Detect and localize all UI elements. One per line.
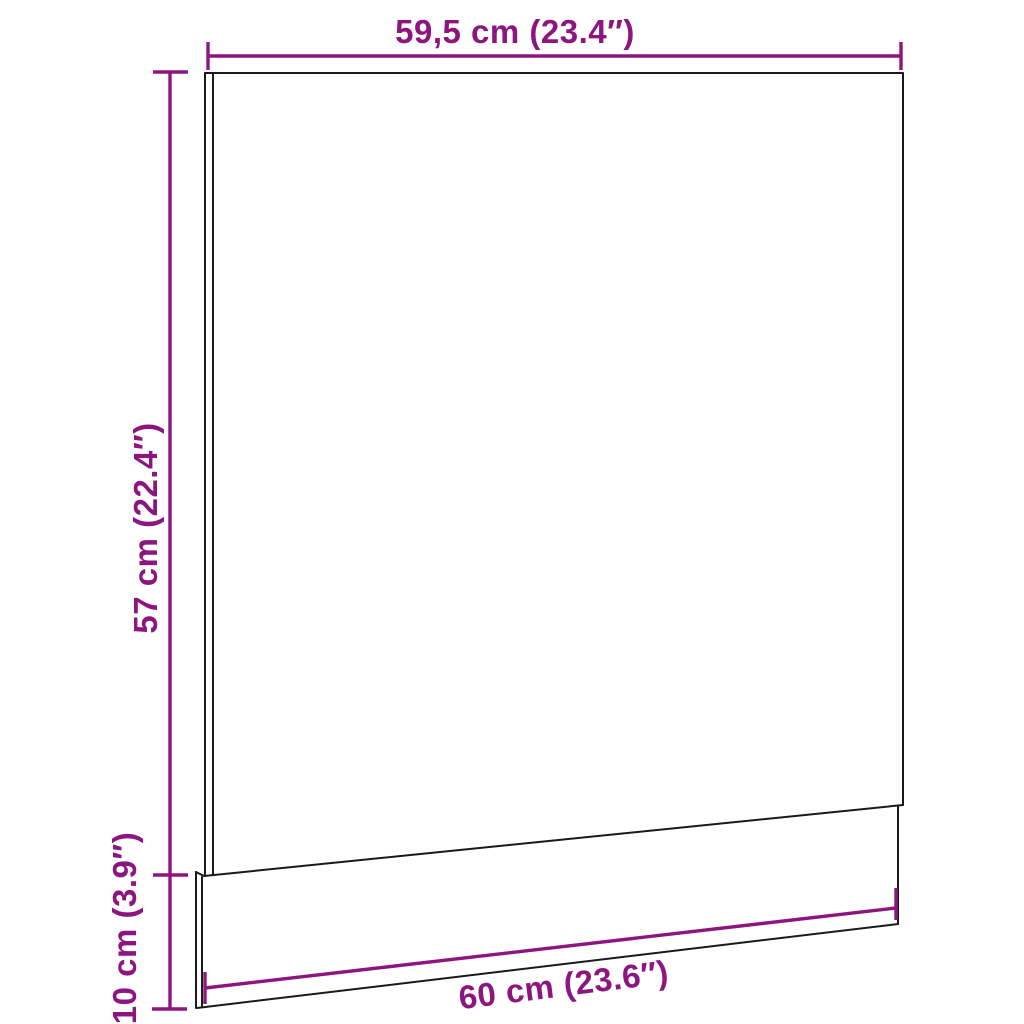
panel-bottom-plinth-top-edge (204, 805, 903, 876)
diagram-canvas: 59,5 cm (23.4″) 57 cm (22.4″) 10 cm (3.9… (0, 0, 1024, 1024)
plinth-top-left-sliver-edge (196, 872, 204, 876)
dim-label-top-width: 59,5 cm (23.4″) (395, 13, 635, 50)
dim-label-plinth-height: 10 cm (3.9″) (106, 832, 143, 1024)
dimension-diagram: 59,5 cm (23.4″) 57 cm (22.4″) 10 cm (3.9… (0, 0, 1024, 1024)
dim-label-panel-height: 57 cm (22.4″) (127, 422, 164, 633)
dim-label-bottom-width: 60 cm (23.6″) (456, 953, 670, 1016)
panel-top-right-outline (205, 73, 903, 805)
